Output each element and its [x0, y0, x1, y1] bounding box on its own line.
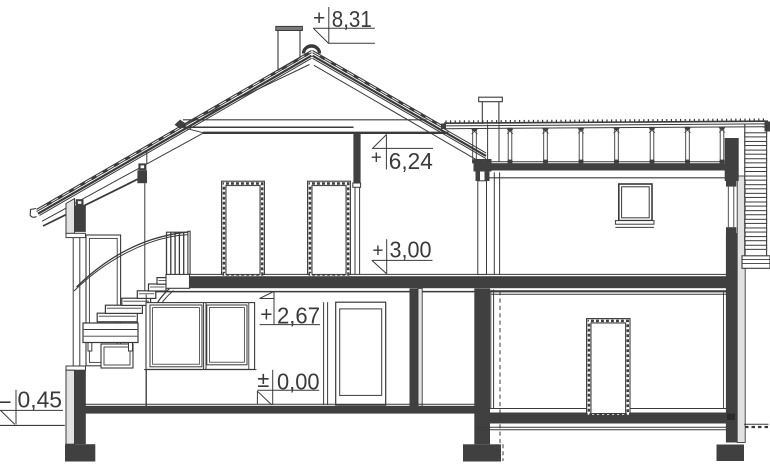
svg-text:0,45: 0,45: [18, 386, 63, 412]
svg-text:+: +: [371, 147, 382, 168]
svg-text:+: +: [372, 241, 383, 262]
svg-text:6,24: 6,24: [389, 148, 433, 174]
svg-text:+: +: [260, 304, 272, 327]
svg-text:+: +: [313, 7, 325, 30]
svg-text:3,00: 3,00: [390, 237, 432, 263]
svg-text:±: ±: [257, 367, 269, 392]
svg-text:2,67: 2,67: [277, 303, 320, 329]
svg-text:8,31: 8,31: [332, 6, 372, 32]
svg-text:0,00: 0,00: [277, 369, 320, 395]
